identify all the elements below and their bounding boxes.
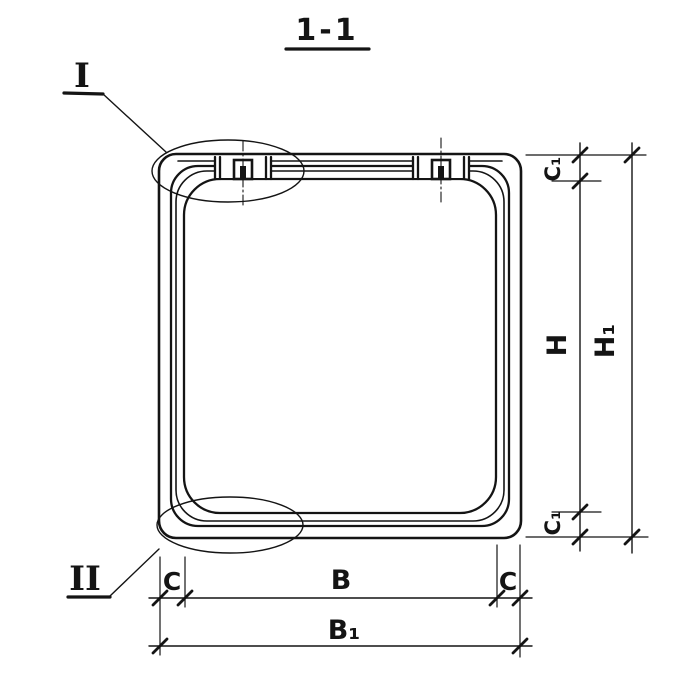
dim-label-c-right: C [499,567,517,596]
groove-contour-1 [171,166,509,526]
outer-contour [159,154,521,538]
dim-label-h1: H₁ [590,324,621,358]
top-joint-left [215,141,271,205]
detail-callout-2: II [68,549,159,599]
dim-label-c1-top: C₁ [541,157,565,182]
detail-marker-2: II [69,559,101,599]
vertical-dimensions: C₁ H H₁ C₁ [526,143,648,553]
box-section [159,154,521,538]
detail-underline-1 [64,93,103,94]
dim-label-c1-bottom: C₁ [541,511,565,536]
dim-label-h: H [542,334,573,357]
detail-callout-1: I [64,56,166,152]
inner-contour [184,179,496,513]
dim-label-c-left: C [163,567,181,596]
top-joint-right [413,138,469,205]
detail-leader-2 [110,549,159,596]
dim-label-b1: B₁ [328,615,360,646]
dim-label-b: B [331,565,352,596]
detail-leader-1 [103,94,166,152]
horizontal-dimensions: C B C B₁ [149,545,532,657]
section-title: 1-1 [295,13,358,48]
section-drawing: 1-1 I [0,0,700,700]
detail-marker-1: I [74,56,90,96]
drawing-sheet: 1-1 I [0,0,700,700]
groove-contour-2 [176,171,504,521]
